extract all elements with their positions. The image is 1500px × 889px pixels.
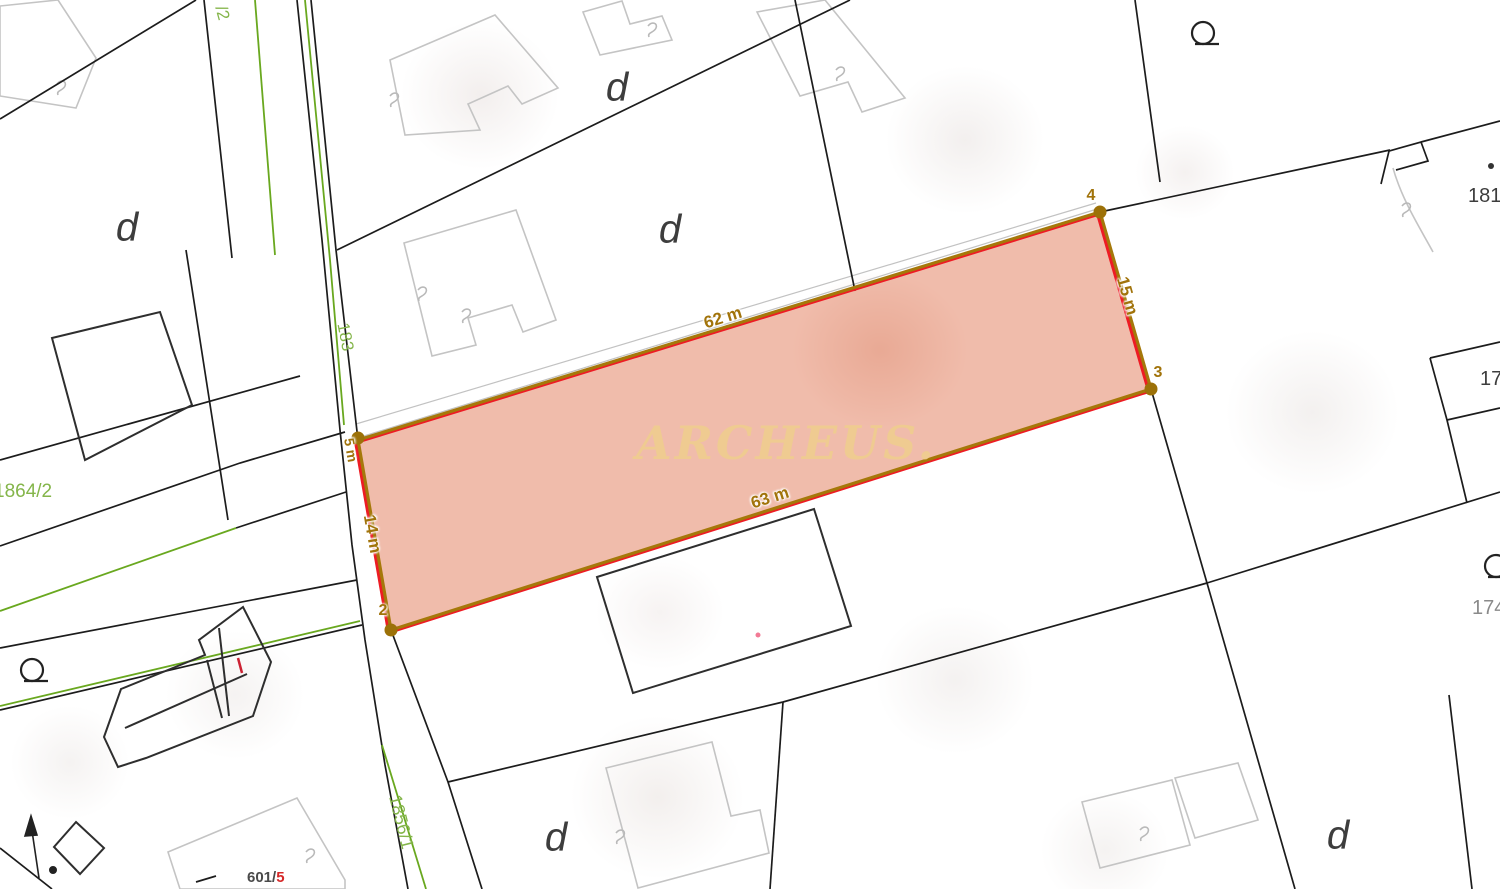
q-marker-icon xyxy=(1485,555,1500,577)
boundary-line xyxy=(0,848,52,889)
squiggle-icon xyxy=(836,67,844,81)
parcel-number-174: 174 xyxy=(1472,597,1500,620)
north-arrow-icon xyxy=(25,816,56,878)
boundary-line xyxy=(0,376,300,460)
boundary-line xyxy=(1100,150,1390,212)
pink-dot xyxy=(756,633,761,638)
boundary-line xyxy=(783,583,1207,702)
parcel-number-601-5: 601/5 xyxy=(247,869,285,886)
boundary-line xyxy=(795,0,855,291)
boundary-line xyxy=(236,492,346,528)
vertex-dot-3[interactable] xyxy=(1145,383,1158,396)
map-canvas[interactable]: ARCHEUS. 62 m 15 m 63 m 14 m 5 m 4 3 2 /… xyxy=(0,0,1500,889)
building-outline xyxy=(390,15,558,135)
parcel-number-1864-2: 1864/2 xyxy=(0,481,52,503)
land-use-letter-d: d xyxy=(1327,814,1349,859)
survey-curve xyxy=(1393,168,1433,252)
boundary-line xyxy=(0,580,357,648)
green-line xyxy=(0,621,360,706)
squiggle-icon xyxy=(1402,203,1410,217)
boundary-line xyxy=(196,876,216,882)
q-marker-icon xyxy=(21,659,48,681)
survey-tick xyxy=(219,628,229,716)
building-outline xyxy=(404,210,556,356)
boundary-line xyxy=(1447,408,1500,420)
building-outline xyxy=(606,742,769,888)
boundary-line xyxy=(1207,492,1500,583)
squiggle-icon xyxy=(306,849,314,863)
building-outline xyxy=(52,312,192,460)
boundary-line xyxy=(448,702,783,782)
point-dot xyxy=(1488,163,1494,169)
vertex-label-2: 2 xyxy=(379,602,388,620)
vertex-label-3: 3 xyxy=(1154,364,1163,382)
red-tick xyxy=(238,658,242,673)
vertex-label-4: 4 xyxy=(1087,187,1096,205)
green-line xyxy=(0,528,236,611)
boundary-line xyxy=(0,0,196,119)
boundary-line xyxy=(1151,389,1295,889)
squiggle-icon xyxy=(648,23,656,37)
boundary-line xyxy=(1430,358,1467,503)
boundary-line xyxy=(1430,342,1500,358)
building-outline xyxy=(104,607,271,767)
squiggle-icon xyxy=(418,287,426,301)
boundary-line xyxy=(1135,0,1160,182)
parcel-number-601-prefix: 601/ xyxy=(247,869,276,886)
land-use-letter-d: d xyxy=(116,206,138,251)
building-outline xyxy=(1082,780,1190,868)
building-outline xyxy=(583,1,672,55)
boundary-line xyxy=(1381,142,1428,184)
survey-tick xyxy=(207,660,222,718)
boundary-line xyxy=(204,0,232,258)
watermark: ARCHEUS. xyxy=(636,416,937,470)
boundary-line xyxy=(1421,121,1500,142)
building-outline xyxy=(1175,763,1258,838)
boundary-line xyxy=(1449,695,1472,889)
building-inner-line xyxy=(125,674,247,728)
vertex-dot-2[interactable] xyxy=(385,624,398,637)
parcel-number-17: 17 xyxy=(1480,368,1500,391)
green-line xyxy=(255,0,275,255)
squiggle-icon xyxy=(1140,827,1148,841)
land-use-letter-d: d xyxy=(606,66,628,111)
vertex-dot-4[interactable] xyxy=(1094,206,1107,219)
land-use-letter-d: d xyxy=(659,208,681,253)
q-marker-icon xyxy=(1192,22,1219,44)
boundary-line xyxy=(770,702,783,889)
green-line xyxy=(305,0,344,425)
building-outline xyxy=(757,0,905,112)
parcel-number-601-suffix: 5 xyxy=(276,869,284,886)
parcel-number-181: 181/ xyxy=(1468,185,1500,208)
building-outline xyxy=(54,822,104,874)
building-outline xyxy=(0,0,96,108)
land-use-letter-d: d xyxy=(545,816,567,861)
